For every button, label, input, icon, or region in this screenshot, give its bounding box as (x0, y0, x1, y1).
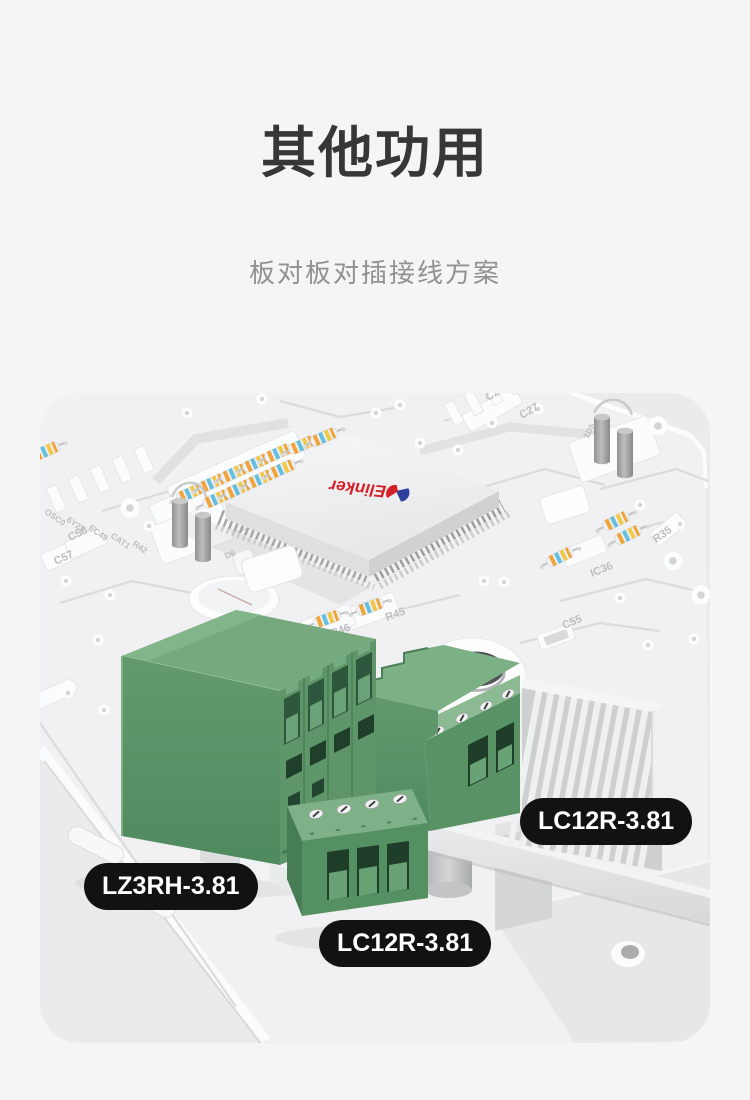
block-front-face (122, 656, 280, 865)
page-subtitle: 板对板对插接线方案 (0, 253, 750, 290)
page-title: 其他功用 (0, 108, 750, 188)
part-label-lc12r-right: LC12R-3.81 (520, 798, 692, 845)
part-label-lz3rh: LZ3RH-3.81 (84, 863, 258, 910)
product-image-card: Elinker (40, 393, 710, 1043)
part-label-lc12r-bottom: LC12R-3.81 (319, 920, 491, 967)
